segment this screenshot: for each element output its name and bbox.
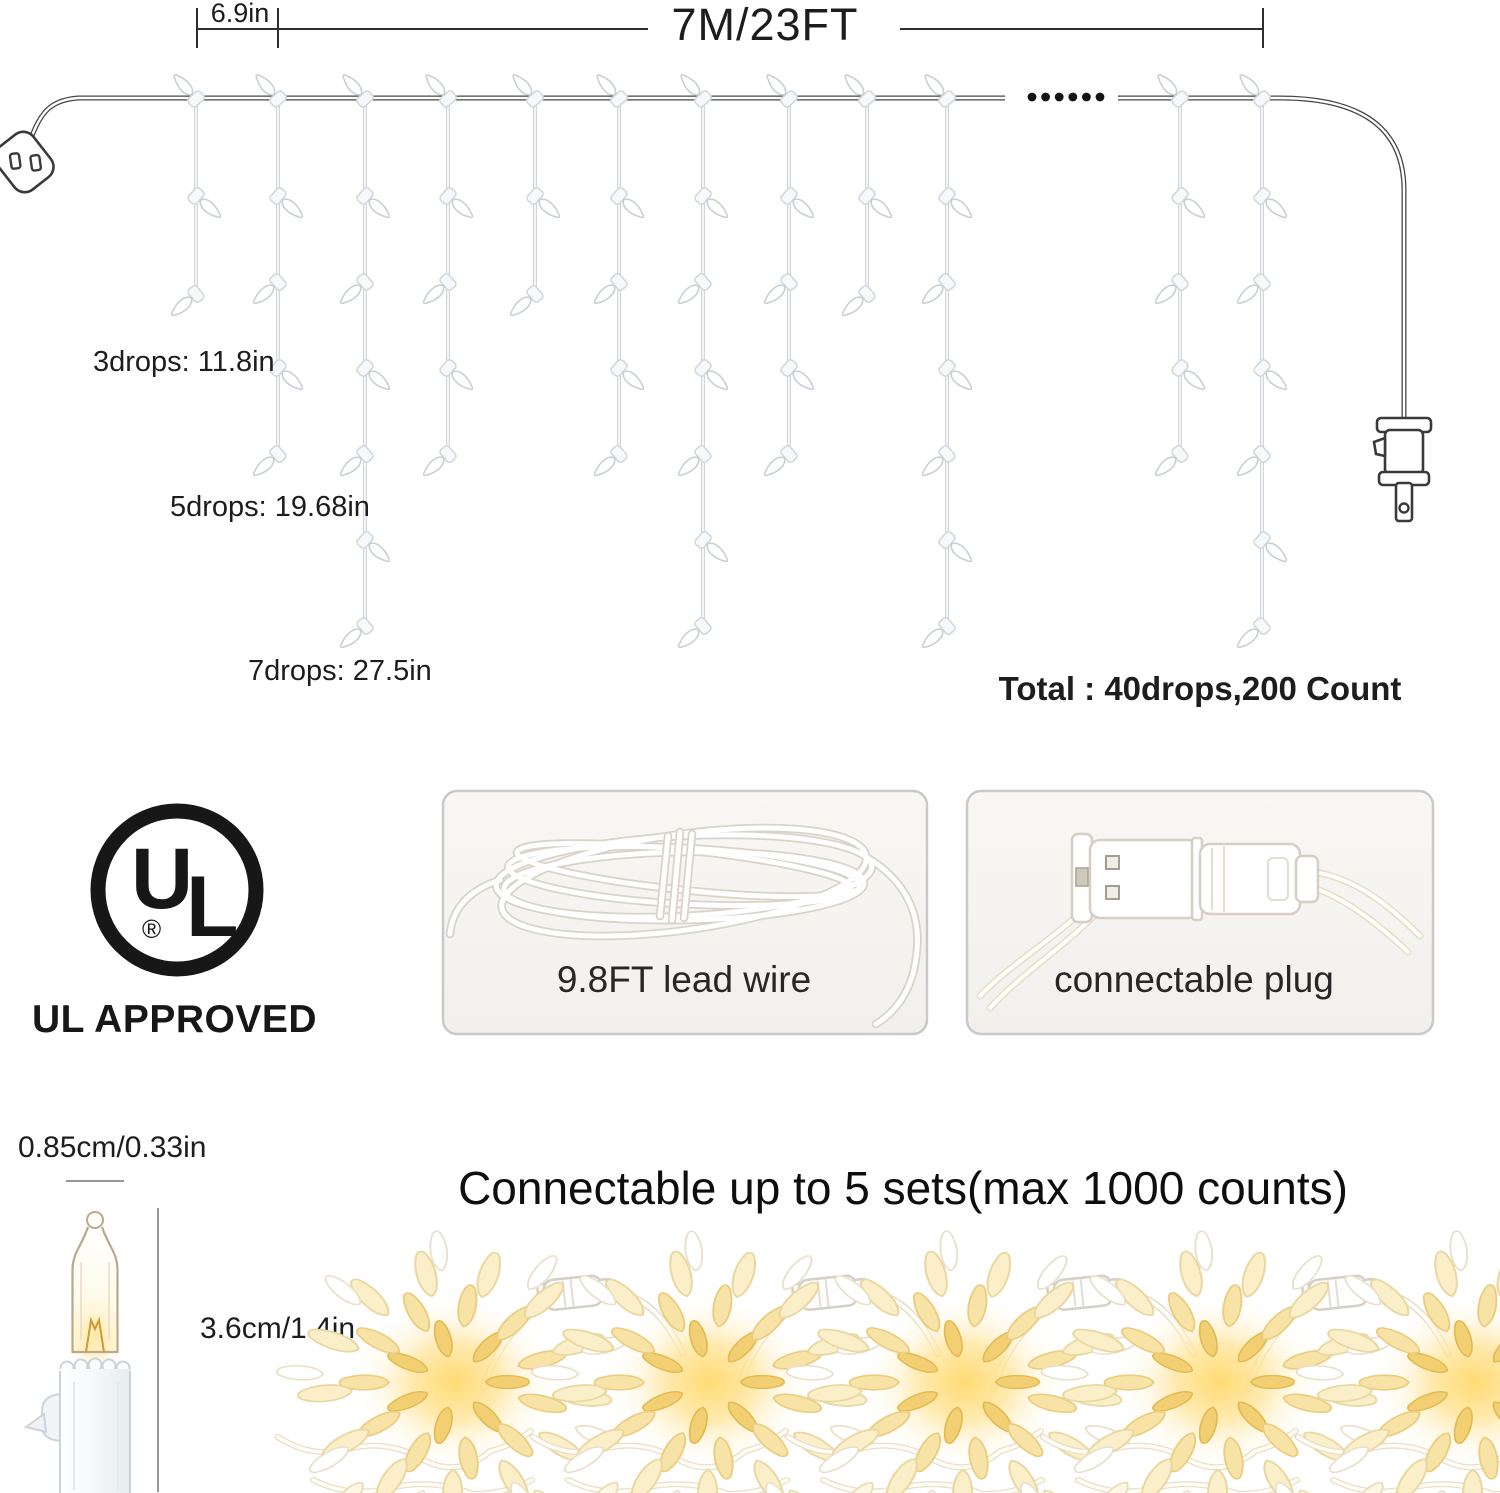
- light-drop: [1151, 70, 1210, 481]
- product-infographic: 6.9in 7M/23FT 3drops: 11.8in 5drops: 19.…: [0, 0, 1500, 1493]
- mini-bulb-icon: [1153, 70, 1190, 109]
- mini-bulb-icon: [336, 444, 375, 481]
- continuation-dots: [1028, 93, 1105, 102]
- mini-bulb-icon: [338, 70, 375, 109]
- ul-logo: U L ®: [98, 811, 256, 969]
- ul-approved-label: UL APPROVED: [32, 998, 317, 1041]
- mini-bulb-icon: [760, 272, 799, 309]
- mini-bulb-icon: [938, 186, 977, 223]
- continuation-dot: [1055, 93, 1064, 102]
- light-drop: [674, 70, 733, 653]
- light-drop: [1233, 70, 1292, 653]
- mini-bulb-icon: [840, 70, 877, 109]
- mini-bulb-icon: [336, 616, 375, 653]
- mini-bulb-icon: [858, 186, 897, 223]
- mini-bulb-icon: [838, 284, 877, 321]
- drop-length-label-3: 3drops: 11.8in: [93, 346, 275, 378]
- light-drop: [419, 70, 478, 481]
- mini-bulb-icon: [674, 444, 713, 481]
- dimension-annotations: 6.9in 7M/23FT: [197, 0, 1263, 50]
- mini-bulb-icon: [676, 70, 713, 109]
- mini-bulb-icon: [920, 70, 957, 109]
- mini-bulb-icon: [356, 530, 395, 567]
- continuation-dot: [1082, 93, 1091, 102]
- mini-bulb-icon: [1171, 358, 1210, 395]
- bulb-spacing-label: 6.9in: [211, 0, 270, 28]
- lead-wire-caption: 9.8FT lead wire: [557, 959, 811, 1000]
- mini-bulb-icon: [674, 616, 713, 653]
- continuation-dot: [1096, 93, 1105, 102]
- mini-bulb-icon: [506, 284, 545, 321]
- mini-bulb-icon: [592, 70, 629, 109]
- mini-bulb-icon: [1233, 272, 1272, 309]
- light-drop: [167, 70, 226, 321]
- mini-bulb-icon: [762, 70, 799, 109]
- mini-bulb-icon: [419, 444, 458, 481]
- connectable-plug-caption: connectable plug: [1054, 959, 1334, 1000]
- mini-bulb-icon: [1233, 616, 1272, 653]
- mini-bulb-icon: [1253, 530, 1292, 567]
- mini-bulb-icon: [760, 444, 799, 481]
- ul-logo-letter-u: U: [131, 831, 193, 927]
- light-drop: [506, 70, 565, 321]
- bulb-detail: 0.85cm/0.33in 3.6cm/1.4in: [18, 1131, 355, 1493]
- light-bundles-row: [276, 1231, 1500, 1493]
- mini-bulb-icon: [421, 70, 458, 109]
- light-drop: [838, 70, 897, 321]
- total-count-label: Total : 40drops,200 Count: [999, 670, 1402, 707]
- mini-bulb-icon: [694, 358, 733, 395]
- mini-bulb-icon: [674, 272, 713, 309]
- mini-bulb-icon: [439, 358, 478, 395]
- mini-bulb-icon: [249, 272, 288, 309]
- mini-bulb-icon: [439, 186, 478, 223]
- mini-bulb-icon: [167, 284, 206, 321]
- continuation-dot: [1041, 93, 1050, 102]
- mini-bulb-icon: [918, 616, 957, 653]
- mini-bulb-icon: [251, 70, 288, 109]
- mini-bulb-icon: [1171, 186, 1210, 223]
- registered-trademark-icon: ®: [142, 914, 161, 944]
- mini-bulb-icon: [356, 358, 395, 395]
- mini-bulb-icon: [1253, 358, 1292, 395]
- mini-bulb-icon: [938, 358, 977, 395]
- mini-bulb-icon: [1151, 272, 1190, 309]
- mini-bulb-icon: [590, 272, 629, 309]
- connectable-heading: Connectable up to 5 sets(max 1000 counts…: [458, 1162, 1348, 1214]
- light-drop: [918, 70, 977, 653]
- mini-bulb-icon: [1253, 186, 1292, 223]
- mini-bulb-icon: [610, 186, 649, 223]
- mini-bulb-icon: [610, 358, 649, 395]
- mini-bulb-icon: [918, 272, 957, 309]
- mini-bulb-icon: [694, 186, 733, 223]
- mini-bulb-icon: [187, 186, 226, 223]
- mini-bulb-icon: [419, 272, 458, 309]
- connectable-plug-card: connectable plug: [967, 791, 1433, 1034]
- total-length-label: 7M/23FT: [671, 0, 858, 50]
- continuation-dot: [1028, 93, 1037, 102]
- light-drop: [590, 70, 649, 481]
- mini-bulb-icon: [590, 444, 629, 481]
- mini-bulb-icon: [1233, 444, 1272, 481]
- mini-bulb-icon: [336, 272, 375, 309]
- mini-bulb-icon: [269, 186, 308, 223]
- bulb-photo: [26, 1212, 130, 1493]
- mini-bulb-icon: [526, 186, 565, 223]
- mini-bulb-icon: [694, 530, 733, 567]
- ul-logo-letter-l: L: [186, 859, 239, 955]
- mini-bulb-icon: [780, 358, 819, 395]
- lead-wire-card: 9.8FT lead wire: [443, 791, 927, 1034]
- mini-bulb-icon: [780, 186, 819, 223]
- continuation-dot: [1068, 93, 1077, 102]
- bulb-width-label: 0.85cm/0.33in: [18, 1131, 206, 1164]
- mini-bulb-icon: [1235, 70, 1272, 109]
- mini-bulb-icon: [508, 70, 545, 109]
- mini-bulb-icon: [918, 444, 957, 481]
- mini-bulb-icon: [1151, 444, 1190, 481]
- drop-length-label-7: 7drops: 27.5in: [248, 655, 432, 687]
- end-plug-icon: [1374, 418, 1431, 521]
- mini-bulb-icon: [169, 70, 206, 109]
- light-drop: [760, 70, 819, 481]
- wall-plug-icon: [0, 127, 59, 198]
- mini-bulb-icon: [249, 444, 288, 481]
- light-drop: [249, 70, 308, 481]
- mini-bulb-icon: [938, 530, 977, 567]
- mini-bulb-icon: [356, 186, 395, 223]
- drop-length-label-5: 5drops: 19.68in: [170, 491, 370, 523]
- light-drop: [336, 70, 395, 653]
